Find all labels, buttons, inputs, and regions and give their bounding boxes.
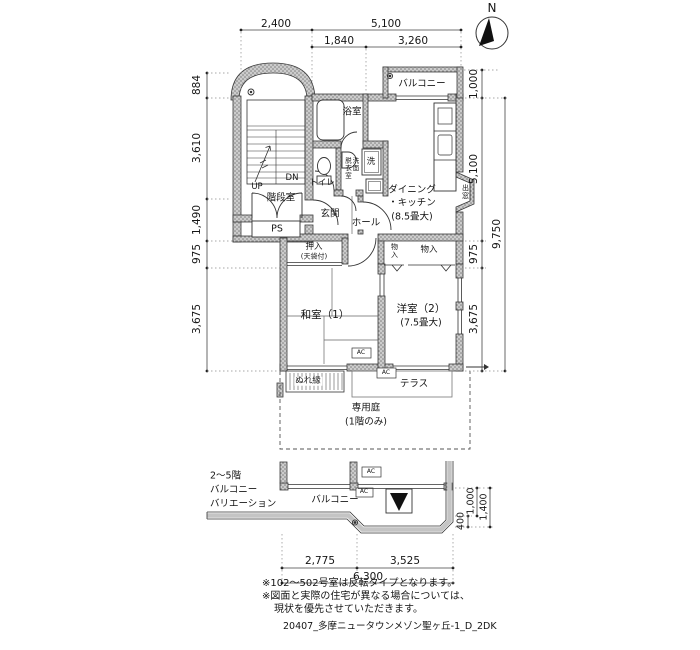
dim-bottom-3525: 3,525 — [390, 556, 420, 567]
washroom-datsui-text: 脱衣室 — [344, 157, 351, 180]
dim-left-3675: 3,675 — [192, 304, 203, 334]
dim-right-1000: 1,000 — [469, 69, 480, 99]
room-label-balcony-top: バルコニー — [398, 79, 445, 89]
variation-caption-3: バリエーション — [210, 499, 276, 509]
room-label-toilet: トイレ — [309, 179, 335, 188]
dim-top-2400: 2,400 — [261, 19, 291, 30]
room-label-balcony-bottom: バルコニー — [311, 495, 358, 505]
fixtures-linework — [207, 73, 489, 533]
stairs-dn-label: DN — [286, 174, 299, 183]
room-label-closet-wide: 物入 — [420, 246, 437, 255]
washroom-senmen-text: 洗面 — [352, 157, 359, 172]
dim-top-1840: 1,840 — [324, 36, 354, 47]
room-label-yoshitsu-2: (7.5畳大) — [400, 318, 442, 328]
room-label-washroom: 脱衣室 洗面 — [344, 157, 358, 180]
dim-left-884: 884 — [192, 75, 203, 95]
ac-label-washitsu: AC — [357, 350, 365, 356]
ac-label-variation-lower: AC — [360, 489, 368, 495]
dim-left-1490: 1,490 — [192, 205, 203, 235]
dim-var-1400: 1,400 — [479, 493, 489, 520]
variation-caption-2: バルコニー — [210, 485, 257, 495]
dim-top-3260: 3,260 — [398, 36, 428, 47]
ac-label-terrace: AC — [382, 370, 390, 376]
variation-caption-1: 2〜5階 — [210, 471, 241, 481]
room-label-yoshitsu-1: 洋室（2） — [397, 304, 446, 315]
room-label-hall: ホール — [352, 218, 381, 228]
note-line-2: ※図面と実際の住宅が異なる場合については、 — [262, 591, 470, 604]
room-label-entrance: 玄関 — [320, 209, 339, 219]
dim-right-3675: 3,675 — [469, 304, 480, 334]
floorplan-drawing — [0, 0, 700, 650]
dim-left-3610: 3,610 — [192, 133, 203, 163]
dim-right-975: 975 — [469, 244, 480, 264]
room-label-stairwell: 階段室 — [267, 193, 296, 203]
note-line-1: ※102〜502号室は反転タイプとなります。 — [262, 578, 457, 591]
dim-left-975: 975 — [192, 244, 203, 264]
dim-right-9750: 9,750 — [492, 219, 503, 249]
dim-var-1000: 1,000 — [466, 487, 476, 514]
room-label-dk-2: ・キッチン — [388, 198, 436, 208]
compass-north-label: N — [488, 2, 497, 14]
dim-var-400: 400 — [456, 512, 466, 530]
room-label-dk-3: (8.5畳大) — [391, 212, 433, 222]
stairs-up-label: UP — [251, 183, 262, 192]
room-label-washer: 洗 — [367, 158, 376, 167]
room-label-terrace: テラス — [400, 379, 428, 389]
room-label-nureen: ぬれ縁 — [294, 377, 322, 386]
room-label-washitsu: 和室（1） — [301, 310, 350, 321]
note-line-3: 現状を優先させていただきます。 — [274, 604, 423, 617]
garden-label-2: (1階のみ) — [345, 417, 387, 427]
room-label-bay-window: 出窓 — [462, 184, 469, 200]
room-label-oshiire-sub: (天袋付) — [301, 254, 327, 261]
room-label-bath: 浴室 — [342, 107, 361, 117]
dim-bottom-2775: 2,775 — [305, 556, 335, 567]
garden-label-1: 専用庭 — [352, 403, 381, 413]
floorplan-page: { "compass": { "north_label": "N" }, "di… — [0, 0, 700, 650]
room-label-closet-small: 物入 — [391, 243, 398, 259]
room-label-ps: PS — [271, 224, 283, 234]
north-compass — [476, 17, 508, 49]
dim-top-5100: 5,100 — [371, 19, 401, 30]
drawing-footer-title: 20407_多摩ニュータウンメゾン聖ヶ丘-1_D_2DK — [283, 621, 497, 633]
room-label-dk-1: ダイニング — [388, 185, 436, 195]
ac-label-variation-upper: AC — [367, 469, 375, 475]
dim-right-5100: 5,100 — [469, 154, 480, 184]
room-label-oshiire: 押入 — [305, 243, 322, 252]
